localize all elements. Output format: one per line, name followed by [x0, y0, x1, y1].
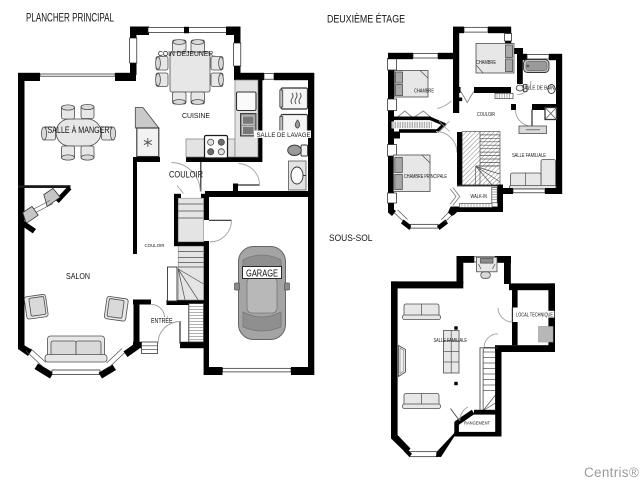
svg-text:COULOIR: COULOIR	[145, 243, 165, 249]
svg-text:WALK-IN: WALK-IN	[471, 194, 488, 200]
svg-text:SALON: SALON	[66, 272, 90, 281]
svg-text:SALLE DE LAVAGE: SALLE DE LAVAGE	[257, 132, 312, 139]
svg-text:SOUS-SOL: SOUS-SOL	[329, 233, 373, 244]
svg-text:CHAMBRE PRINCIPALE: CHAMBRE PRINCIPALE	[404, 174, 448, 180]
svg-text:DEUXIÈME ÉTAGE: DEUXIÈME ÉTAGE	[327, 12, 405, 25]
svg-text:COULOIR: COULOIR	[477, 112, 495, 118]
svg-text:SALLE FAMILIALE: SALLE FAMILIALE	[434, 338, 468, 344]
svg-text:RANGEMENT: RANGEMENT	[464, 420, 490, 426]
svg-text:Centris®: Centris®	[584, 465, 639, 480]
svg-text:PLANCHER PRINCIPAL: PLANCHER PRINCIPAL	[26, 11, 114, 24]
svg-text:COULOIR: COULOIR	[169, 169, 203, 179]
svg-text:CHAMBRE: CHAMBRE	[414, 88, 435, 94]
svg-text:COIN DÉJEUNER.: COIN DÉJEUNER.	[158, 49, 215, 58]
svg-text:"SALLE À MANGER": "SALLE À MANGER"	[45, 125, 112, 135]
svg-text:CHAMBRE: CHAMBRE	[476, 60, 497, 66]
svg-text:CUISINE: CUISINE	[182, 111, 210, 120]
svg-text:GARAGE: GARAGE	[246, 268, 278, 279]
svg-text:LOCAL TECHNIQUE: LOCAL TECHNIQUE	[516, 312, 554, 318]
svg-text:SALLE DE BAIN: SALLE DE BAIN	[522, 85, 555, 91]
svg-text:SALLE FAMILIALE: SALLE FAMILIALE	[512, 153, 547, 159]
svg-text:ENTRÉE: ENTRÉE	[151, 316, 173, 325]
